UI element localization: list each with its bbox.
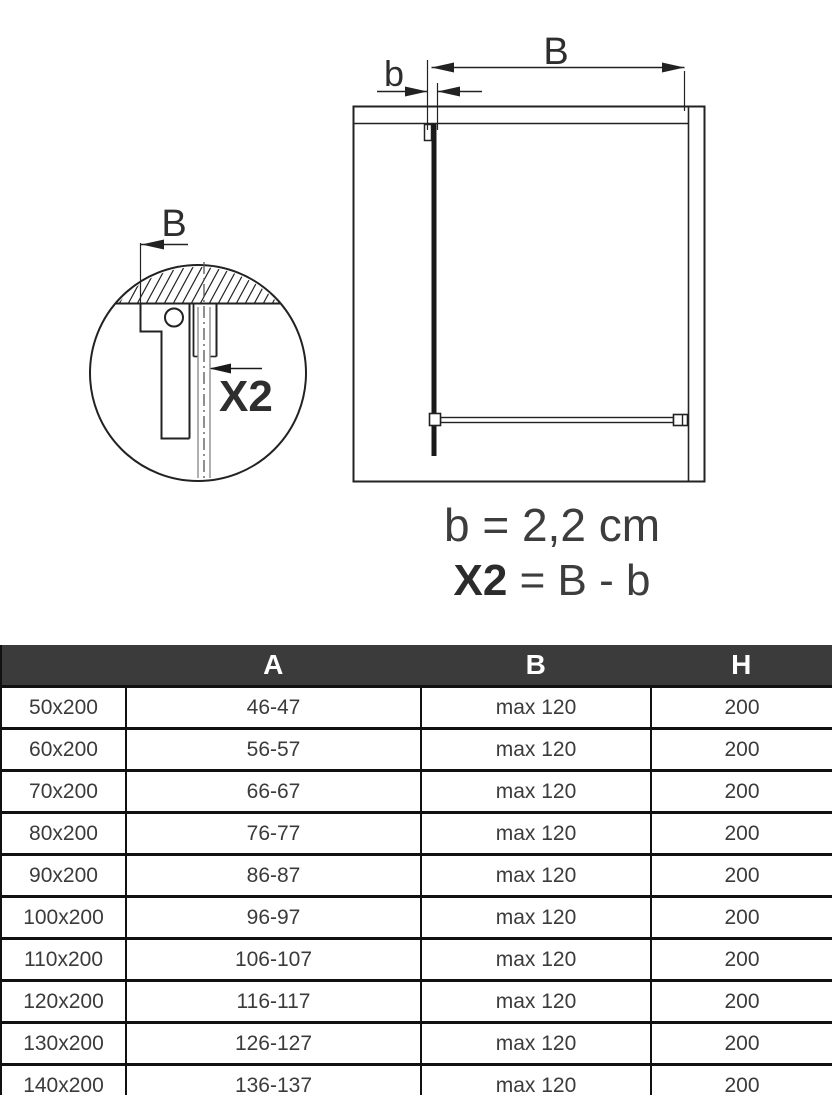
glass-panel-edge: [425, 124, 435, 456]
cell-h: 200: [651, 897, 832, 939]
cell-h: 200: [651, 981, 832, 1023]
support-bar: [430, 414, 688, 426]
cell-size: 90x200: [1, 855, 126, 897]
frame-outline: [354, 107, 705, 482]
glass-panel-section: [198, 262, 210, 480]
cell-b: max 120: [421, 981, 651, 1023]
support-bar-wall-bracket: [674, 415, 688, 426]
cell-a: 66-67: [126, 771, 421, 813]
header-H: H: [651, 645, 832, 687]
mounting-hole: [165, 309, 183, 327]
table-row: 100x20096-97max 120200: [1, 897, 832, 939]
cell-size: 140x200: [1, 1065, 126, 1095]
cell-size: 60x200: [1, 729, 126, 771]
detail-circle-view: X2 B: [90, 203, 306, 481]
table-row: 90x20086-87max 120200: [1, 855, 832, 897]
cell-size: 130x200: [1, 1023, 126, 1065]
cell-b: max 120: [421, 1023, 651, 1065]
cell-a: 106-107: [126, 939, 421, 981]
cell-a: 46-47: [126, 687, 421, 729]
cell-h: 200: [651, 939, 832, 981]
technical-drawing: B b: [0, 0, 832, 645]
shower-frame-front-view: [354, 107, 705, 482]
cell-size: 100x200: [1, 897, 126, 939]
arrowhead-inward-left: [438, 87, 461, 97]
glass-clamp-channel: [194, 304, 217, 357]
dim-b-main-label: b: [384, 53, 404, 94]
table-header-row: A B H: [1, 645, 832, 687]
formula-x2-lhs: X2: [454, 556, 508, 605]
formula-x2-rhs: = B - b: [507, 556, 650, 605]
table-row: 60x20056-57max 120200: [1, 729, 832, 771]
cell-b: max 120: [421, 939, 651, 981]
wall-profile-bracket: [141, 304, 190, 439]
header-A: A: [126, 645, 421, 687]
support-bar-tube: [441, 418, 674, 423]
cell-size: 80x200: [1, 813, 126, 855]
cell-size: 120x200: [1, 981, 126, 1023]
cell-b: max 120: [421, 729, 651, 771]
arrowhead-right: [662, 63, 685, 73]
cell-a: 126-127: [126, 1023, 421, 1065]
cell-a: 56-57: [126, 729, 421, 771]
x2-detail-label: X2: [219, 372, 273, 421]
table-row: 50x20046-47max 120200: [1, 687, 832, 729]
cell-a: 96-97: [126, 897, 421, 939]
formula-b-value: b = 2,2 cm: [352, 502, 752, 548]
cell-b: max 120: [421, 855, 651, 897]
dim-B-main-label: B: [543, 31, 568, 73]
support-bar-glass-clamp: [430, 414, 441, 426]
cell-h: 200: [651, 687, 832, 729]
arrowhead-left: [432, 63, 455, 73]
cell-size: 110x200: [1, 939, 126, 981]
table-row: 140x200136-137max 120200: [1, 1065, 832, 1095]
table-row: 70x20066-67max 120200: [1, 771, 832, 813]
dim-B-detail-label: B: [161, 203, 186, 245]
formula-x2: X2 = B - b: [352, 558, 752, 604]
table-row: 80x20076-77max 120200: [1, 813, 832, 855]
cell-a: 76-77: [126, 813, 421, 855]
table-row: 130x200126-127max 120200: [1, 1023, 832, 1065]
cell-b: max 120: [421, 771, 651, 813]
cell-h: 200: [651, 813, 832, 855]
spec-table-body: 50x20046-47max 12020060x20056-57max 1202…: [1, 687, 832, 1095]
cell-size: 50x200: [1, 687, 126, 729]
cell-h: 200: [651, 729, 832, 771]
size-table: A B H 50x20046-47max 12020060x20056-57ma…: [0, 645, 832, 1095]
cell-b: max 120: [421, 813, 651, 855]
size-table-container: A B H 50x20046-47max 12020060x20056-57ma…: [0, 645, 832, 1095]
cell-a: 116-117: [126, 981, 421, 1023]
cell-b: max 120: [421, 897, 651, 939]
cell-b: max 120: [421, 687, 651, 729]
cell-h: 200: [651, 1065, 832, 1095]
header-size: [1, 645, 126, 687]
installation-diagram-page: B b: [0, 0, 832, 1095]
cell-size: 70x200: [1, 771, 126, 813]
arrowhead-inward-right: [405, 87, 428, 97]
cell-b: max 120: [421, 1065, 651, 1095]
cell-h: 200: [651, 771, 832, 813]
table-row: 110x200106-107max 120200: [1, 939, 832, 981]
cell-h: 200: [651, 1023, 832, 1065]
table-row: 120x200116-117max 120200: [1, 981, 832, 1023]
header-B: B: [421, 645, 651, 687]
cell-a: 86-87: [126, 855, 421, 897]
cell-a: 136-137: [126, 1065, 421, 1095]
cell-h: 200: [651, 855, 832, 897]
wall-hatching: [92, 256, 298, 304]
